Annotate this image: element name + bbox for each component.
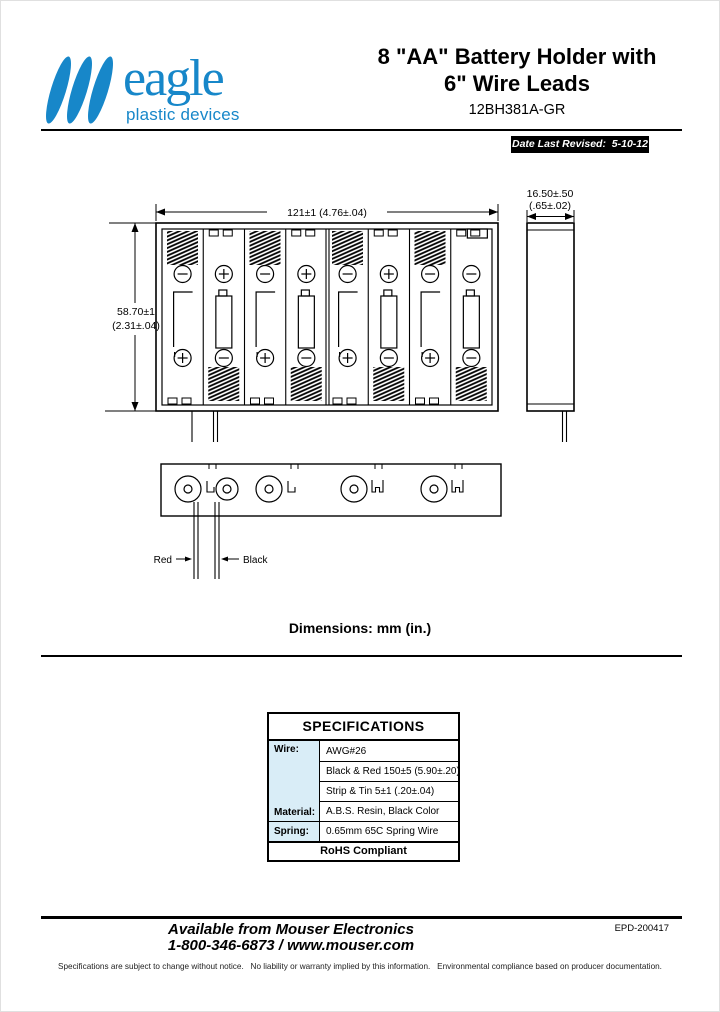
spec-value-spring: 0.65mm 65C Spring Wire [320,821,460,841]
spec-label-wire: Wire: [274,744,319,755]
spec-value-wire-strip: Strip & Tin 5±1 (.20±.04) [320,781,460,801]
specifications-table: SPECIFICATIONS Wire: Material: AWG#26 Bl… [267,712,460,862]
header-divider [41,129,682,131]
black-wire-label: Black [243,555,268,566]
spec-label-wire-material: Wire: Material: [269,741,320,821]
red-wire-label: Red [154,555,172,566]
spec-value-material: A.B.S. Resin, Black Color [320,801,460,821]
title-line-1: 8 "AA" Battery Holder with [361,43,673,70]
disclaimer-text: Specifications are subject to change wit… [1,962,719,971]
depth-dimension-label-mm: 16.50±.50 [527,188,574,200]
title-line-2: 6" Wire Leads [361,70,673,97]
mouser-line-1: Available from Mouser Electronics [101,922,481,938]
spec-label-spring: Spring: [269,821,320,841]
spec-table-title: SPECIFICATIONS [269,714,458,741]
spec-label-material: Material: [274,807,319,818]
battery-cells [167,229,487,404]
mouser-availability: Available from Mouser Electronics 1-800-… [101,922,481,954]
eagle-logo: eagle plastic devices [49,53,279,128]
depth-dimension-label-in: (.65±.02) [529,200,571,212]
footer-divider [41,916,682,919]
datasheet-page: eagle plastic devices 8 "AA" Battery Hol… [0,0,720,1012]
height-dimension-label-in: (2.31±.04) [112,320,160,332]
part-number: 12BH381A-GR [361,102,673,118]
logo-brand-text: eagle [123,53,223,105]
date-last-revised-badge: Date Last Revised: 5-10-12 [511,136,649,153]
rohs-compliant-banner: RoHS Compliant [269,841,458,860]
height-dimension-label-mm: 58.70±1 [117,306,155,318]
red-wire-arrow [176,557,192,562]
black-wire-arrow [221,557,239,562]
technical-drawing: 121±1 (4.76±.04) 58.70±1 (2.31±.04) [1,171,720,641]
spec-value-wire-gauge: AWG#26 [320,741,460,761]
spec-value-wire-length: Black & Red 150±5 (5.90±.20) [320,761,460,781]
logo-tagline: plastic devices [126,105,240,125]
lead-wires-top [192,411,218,442]
lead-wires-bottom [194,502,219,579]
section-divider [41,655,682,657]
bottom-view [161,464,501,516]
mouser-line-2: 1-800-346-6873 / www.mouser.com [101,938,481,954]
front-view [156,223,498,411]
document-title: 8 "AA" Battery Holder with 6" Wire Leads… [361,43,673,118]
side-view [527,223,574,442]
document-number: EPD-200417 [615,923,669,934]
units-note: Dimensions: mm (in.) [1,620,719,636]
width-dimension-label: 121±1 (4.76±.04) [287,207,367,219]
